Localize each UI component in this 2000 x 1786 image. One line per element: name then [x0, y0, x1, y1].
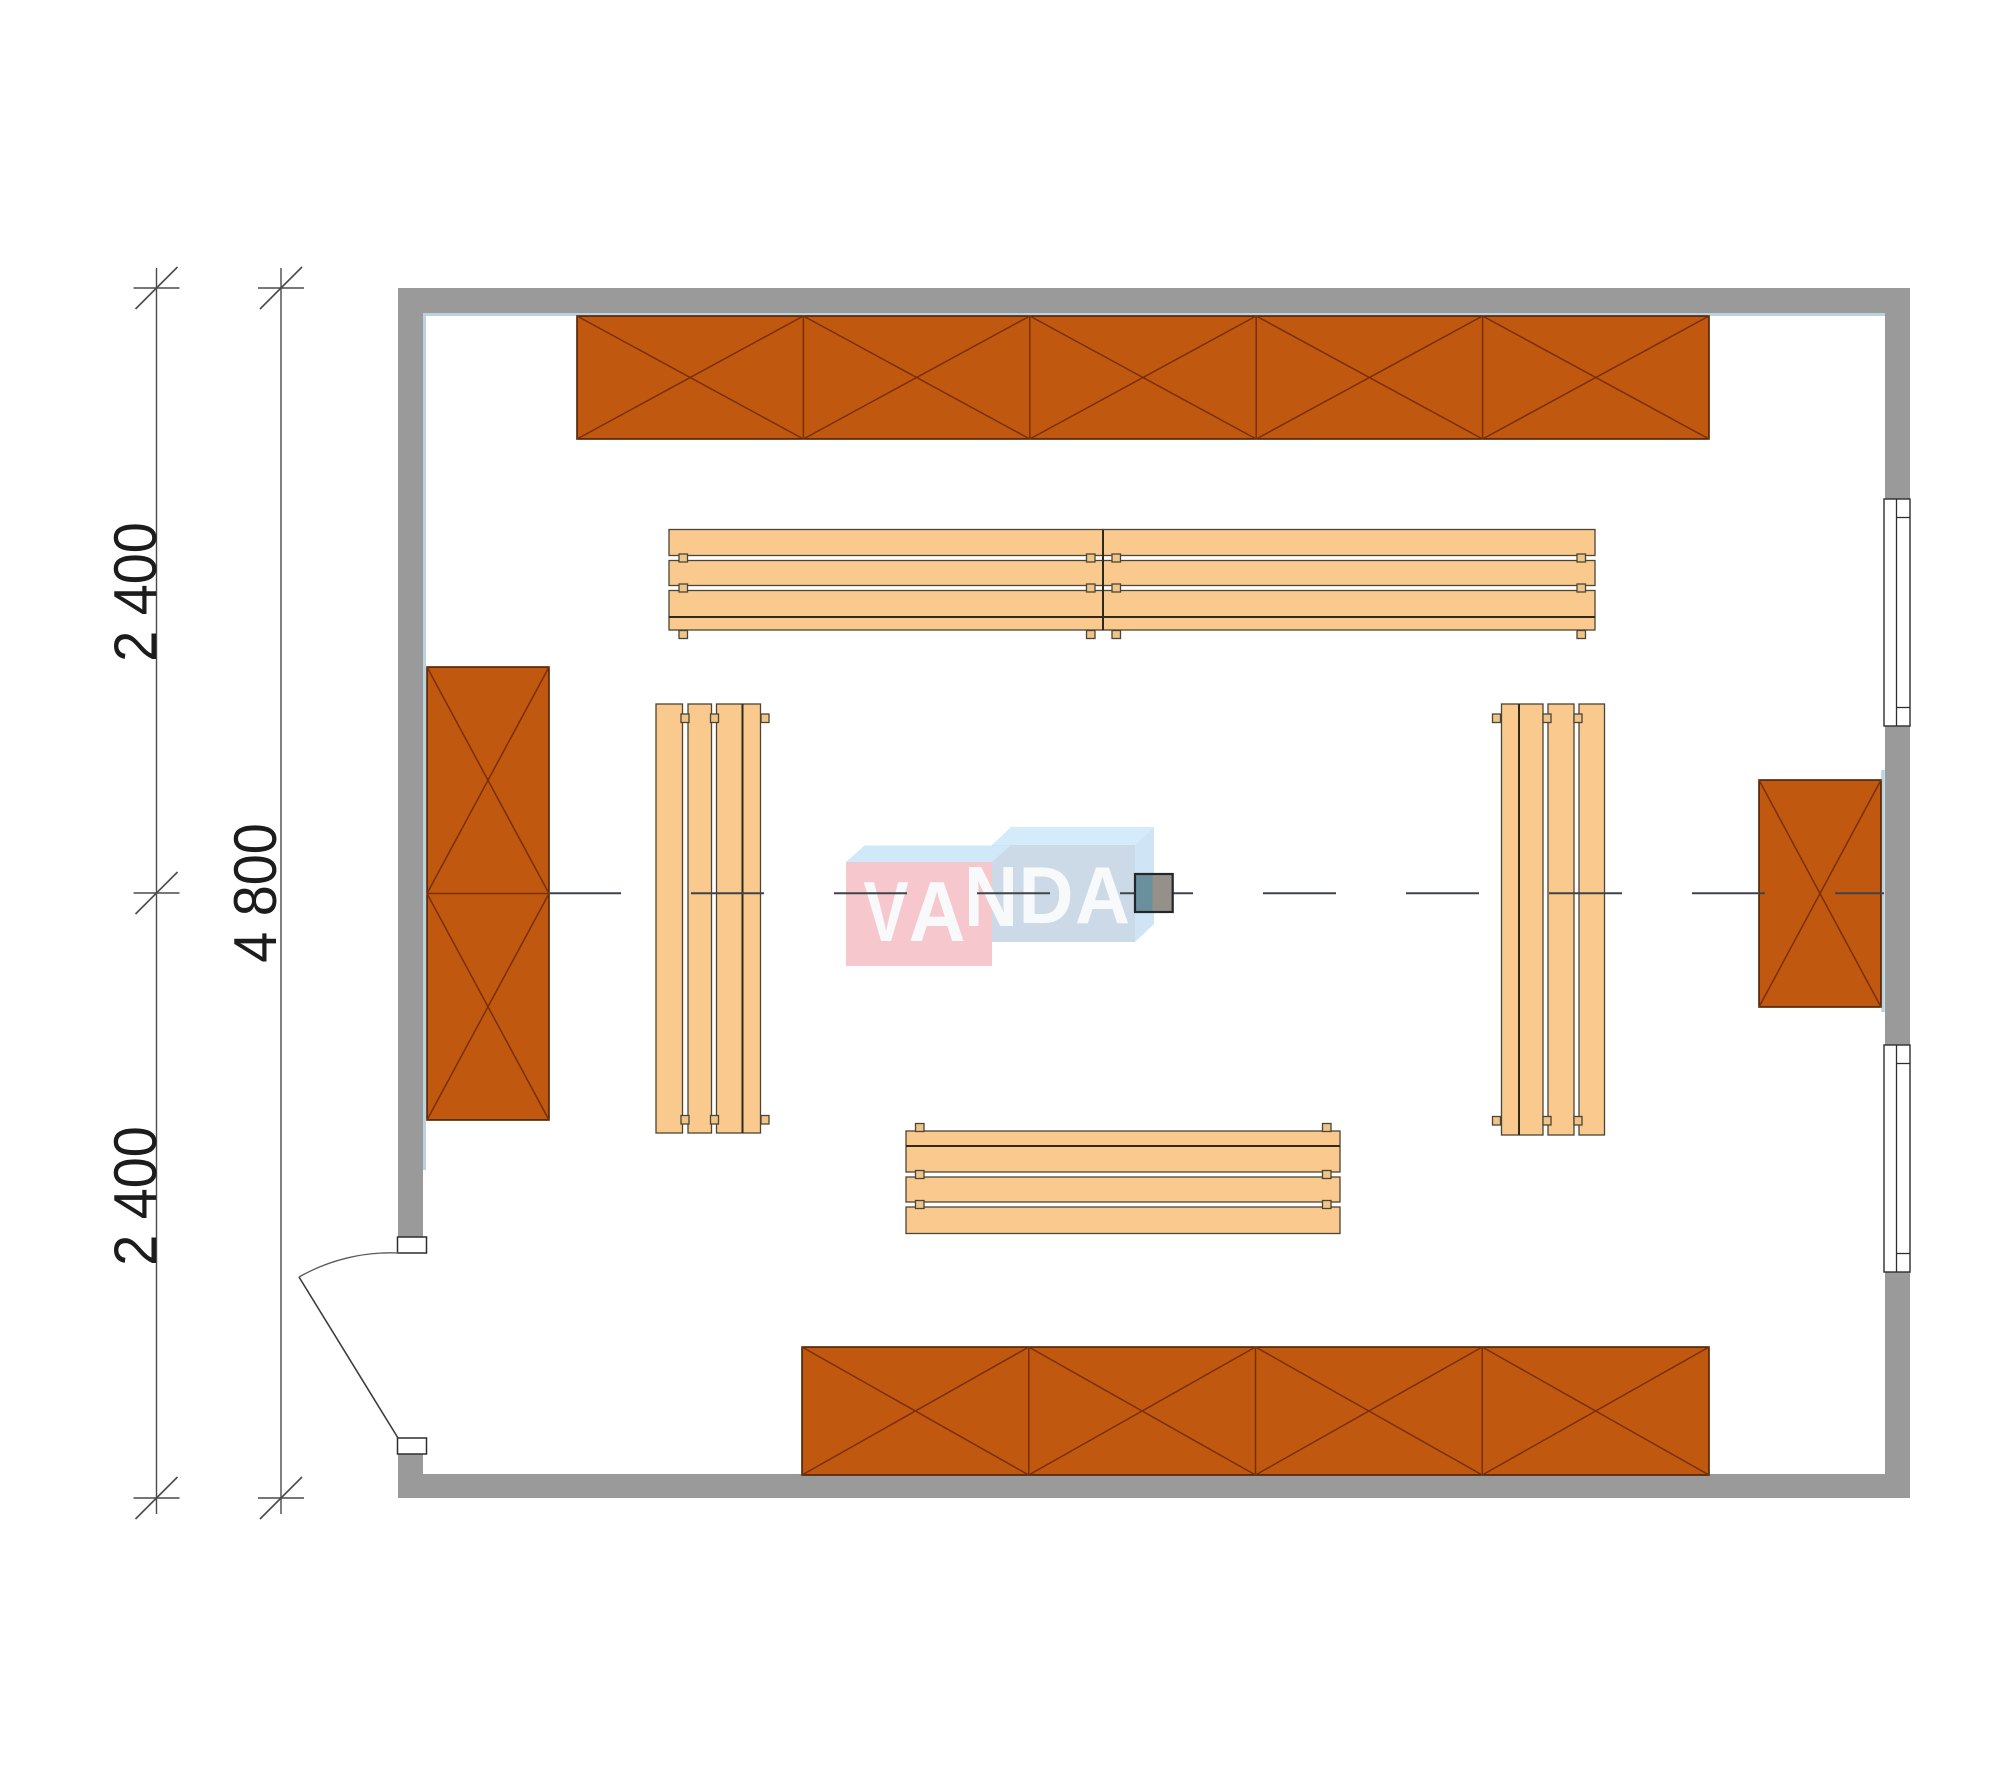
svg-text:2 400: 2 400 — [103, 1126, 169, 1266]
svg-text:V: V — [863, 865, 908, 960]
svg-text:D: D — [1019, 850, 1074, 941]
svg-text:A: A — [1075, 850, 1130, 941]
svg-text:N: N — [964, 850, 1018, 944]
svg-text:4 800: 4 800 — [223, 823, 289, 963]
svg-text:2 400: 2 400 — [103, 522, 169, 662]
svg-text:A: A — [908, 865, 965, 959]
